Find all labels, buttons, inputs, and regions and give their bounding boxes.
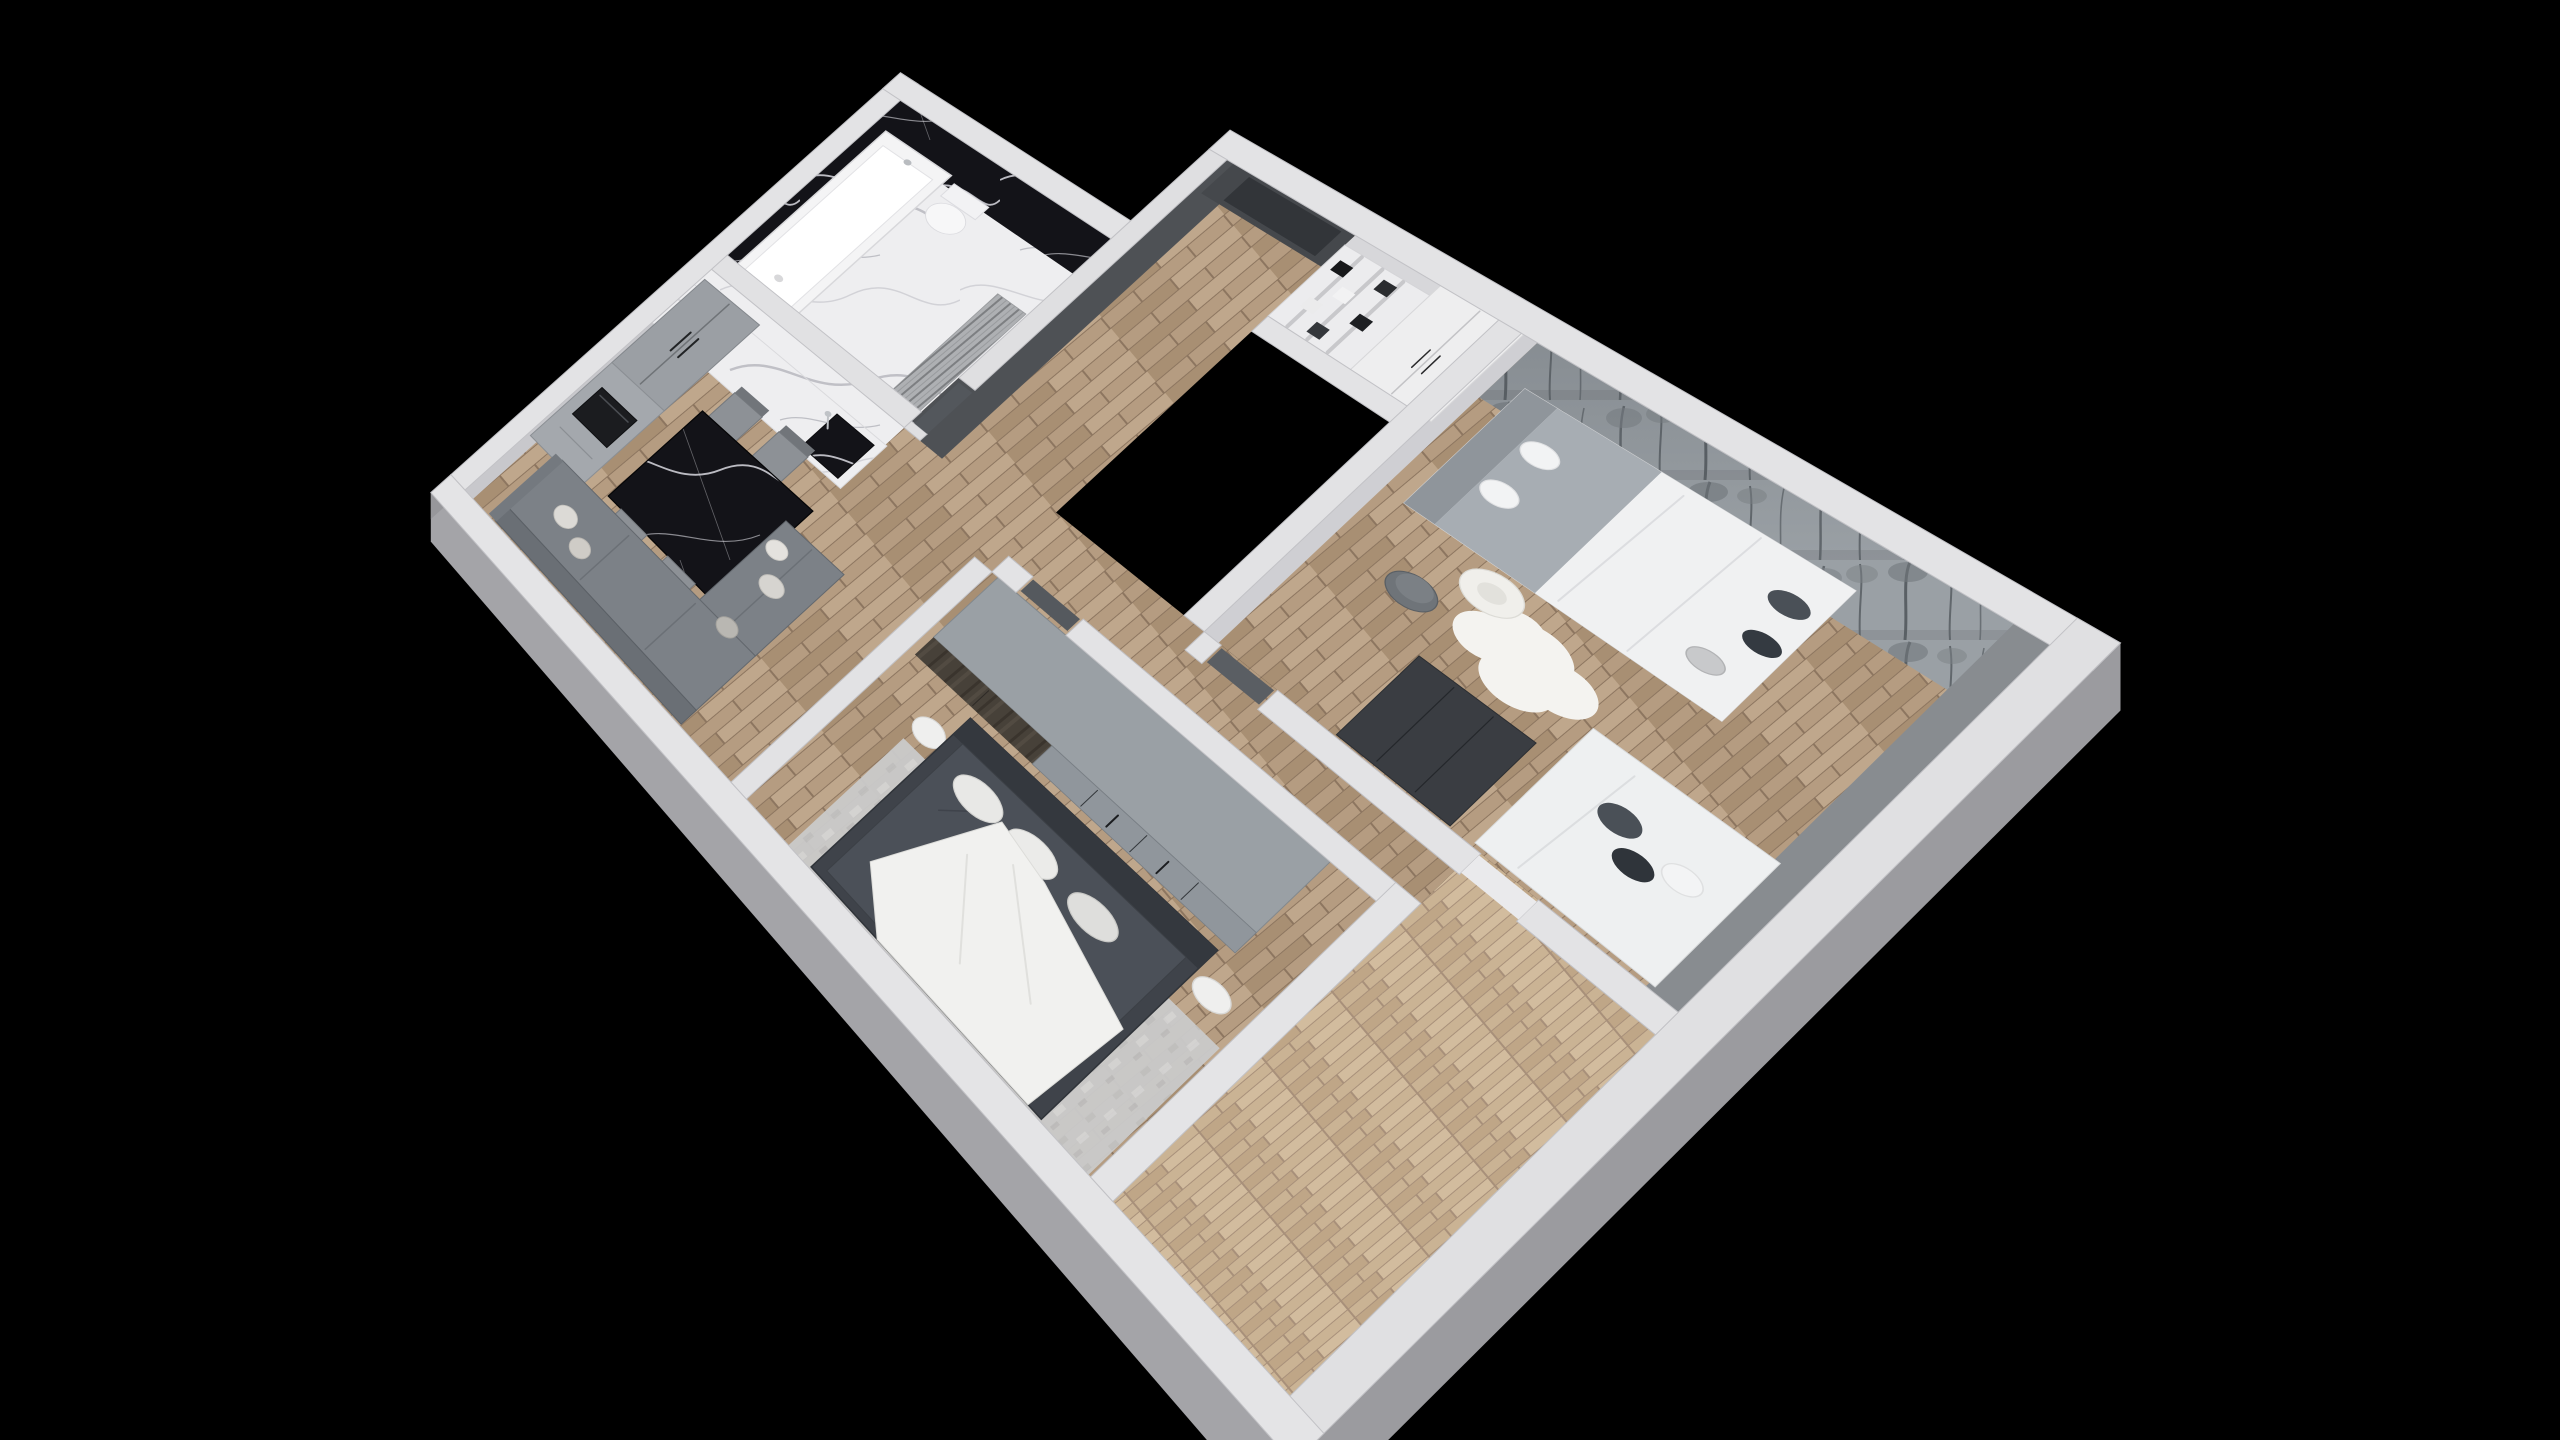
- render-viewport: [0, 0, 2560, 1440]
- floorplan-svg: [0, 0, 2560, 1440]
- kitchen-faucet-arm: [828, 414, 829, 429]
